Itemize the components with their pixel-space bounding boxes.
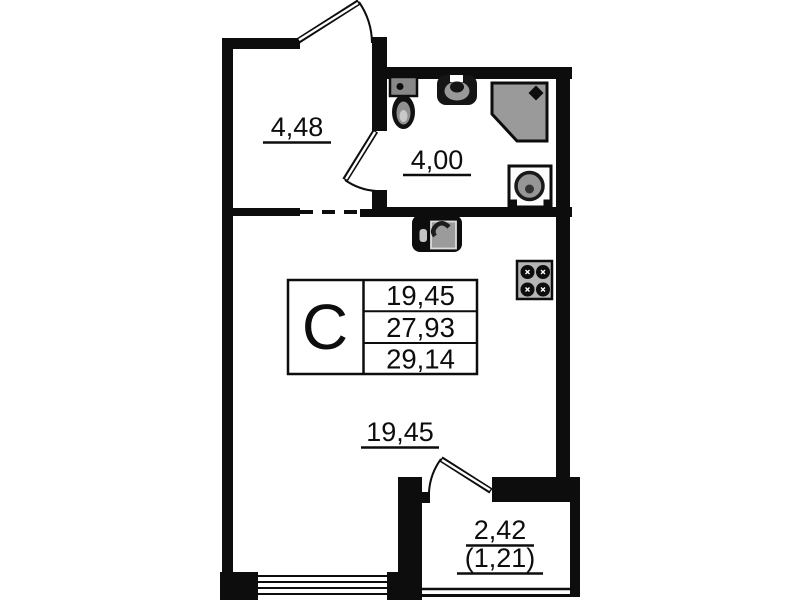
floor-plan: C 19,45 27,93 29,14 4,48 4,00 19,45 2,42… [0, 0, 799, 600]
wall-top-hallway [222, 38, 300, 49]
wall-left-outer [222, 38, 233, 600]
sink-icon [437, 75, 477, 105]
balcony-area-label: 2,42 [474, 515, 527, 545]
entry-door-leaf-inner [299, 3, 358, 40]
washer-foot-right [544, 200, 551, 206]
washing-machine-icon [509, 166, 551, 207]
toilet-button [397, 83, 404, 90]
room-label-hallway: 4,48 [271, 112, 324, 142]
bathroom-door-swing-arc [345, 180, 376, 191]
wall-right-outer [556, 67, 570, 479]
bathroom-door-leaf-inner [346, 132, 375, 179]
area-table-row-2: 27,93 [386, 312, 455, 343]
unit-type-label: C [302, 291, 348, 363]
balcony-door-swing-arc [429, 459, 441, 492]
wall-balcony-right [570, 477, 580, 597]
balcony-door [429, 459, 491, 492]
washer-foot-left [511, 200, 518, 206]
area-table-row-3: 29,14 [386, 344, 455, 375]
balcony-glazing [422, 589, 575, 596]
entry-door-swing-arc [359, 2, 372, 43]
kitchen-sink-icon [412, 215, 462, 252]
floor-plan-drawing: C 19,45 27,93 29,14 4,48 4,00 19,45 2,42… [0, 0, 799, 600]
shower-icon [492, 83, 547, 141]
wall-hallway-bottom [222, 208, 300, 216]
washer-drum-core [525, 185, 534, 194]
wall-bottom-left-corner [220, 572, 258, 600]
wall-entry-jamb-divider-upper [372, 37, 387, 131]
stove-icon [517, 261, 552, 299]
sink-basin-shadow [450, 82, 464, 93]
wall-dashed-line-end-block [360, 209, 385, 217]
wall-bottom-window-right-block [387, 572, 422, 600]
room-label-living: 19,45 [366, 417, 434, 447]
sink-faucet-notch [450, 75, 463, 82]
entry-door [298, 2, 372, 43]
wall-balcony-door-jamb-notch [420, 492, 430, 503]
kitchen-sink-drainer [420, 229, 428, 242]
bathroom-door [345, 131, 376, 191]
area-table: C 19,45 27,93 29,14 [288, 280, 477, 375]
toilet-icon [390, 77, 417, 129]
living-room-window [258, 576, 388, 594]
room-label-bathroom: 4,00 [411, 145, 464, 175]
toilet-bowl-water [400, 110, 408, 122]
wall-balcony-top [492, 477, 580, 502]
area-table-row-1: 19,45 [386, 280, 455, 311]
balcony-coeff-label: (1,21) [465, 543, 536, 573]
balcony-door-leaf-inner [442, 460, 490, 490]
